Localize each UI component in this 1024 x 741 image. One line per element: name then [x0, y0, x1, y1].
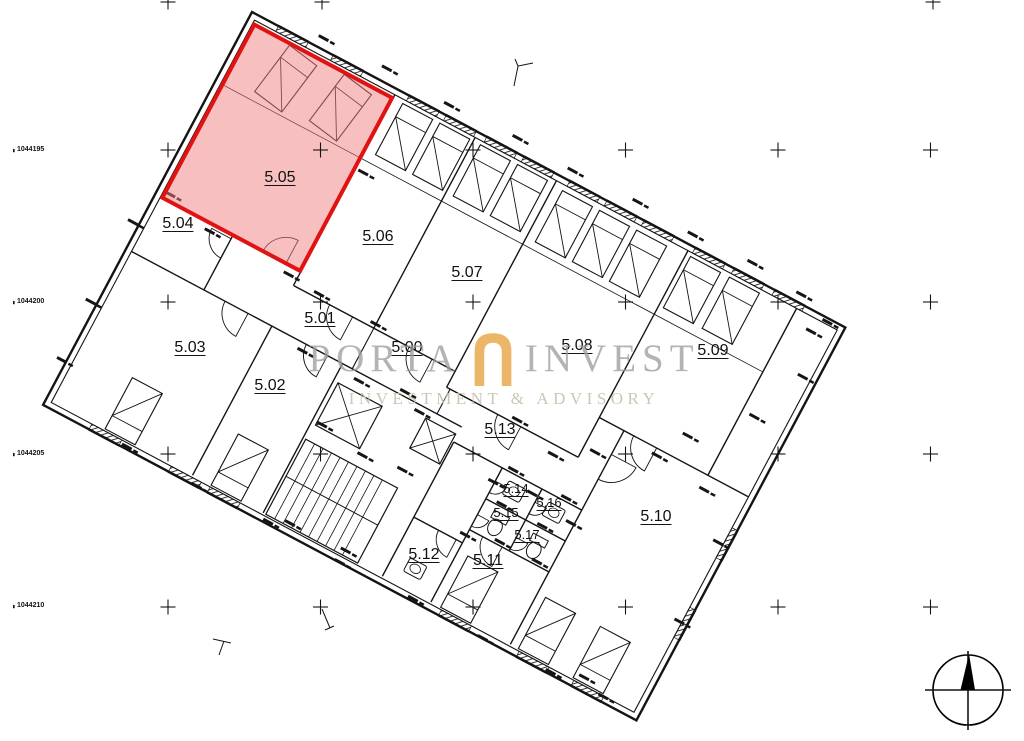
survey-grid-and-labels: 10441951044200104420510442105.005.015.02…: [13, 0, 941, 655]
highlighted-room-5.05[interactable]: [162, 25, 392, 271]
room-label-5.09: 5.09: [697, 342, 728, 359]
north-arrow-compass: [925, 651, 1011, 730]
room-label-5.15: 5.15: [493, 505, 518, 520]
bed-symbol: [535, 191, 592, 258]
staircase: [266, 439, 398, 563]
room-label-5.03: 5.03: [174, 339, 205, 356]
elevator-shaft: [315, 374, 455, 485]
bed-symbol: [105, 378, 162, 445]
radiator-hatches: [69, 25, 847, 722]
coordinate-label: 1044195: [17, 146, 44, 153]
room-label-5.04: 5.04: [162, 215, 193, 232]
coordinate-label: 1044200: [17, 298, 44, 305]
room-label-5.12: 5.12: [408, 546, 439, 563]
room-label-5.02: 5.02: [254, 377, 285, 394]
room-label-5.00: 5.00: [391, 339, 422, 356]
door-arcs: [127, 202, 664, 620]
room-label-5.10: 5.10: [640, 508, 671, 525]
floorplan-page: 10441951044200104420510442105.005.015.02…: [0, 0, 1024, 741]
floorplan-canvas: 10441951044200104420510442105.005.015.02…: [0, 0, 1024, 741]
room-label-5.16: 5.16: [536, 495, 561, 510]
bed-symbol: [490, 164, 547, 231]
door-arc: [622, 436, 657, 471]
room-label-5.07: 5.07: [451, 264, 482, 281]
room-label-5.08: 5.08: [561, 337, 592, 354]
bed-symbols: [82, 39, 804, 693]
bed-symbol: [663, 257, 720, 324]
room-label-5.01: 5.01: [304, 310, 335, 327]
north-needle-icon: [961, 654, 976, 690]
door-arc: [598, 454, 636, 492]
room-label-5.13: 5.13: [484, 421, 515, 438]
bed-symbol: [572, 210, 629, 277]
coordinate-label: 1044205: [17, 450, 44, 457]
room-label-5.06: 5.06: [362, 228, 393, 245]
bed-symbol: [573, 626, 630, 693]
building: [32, 0, 856, 723]
door-arc: [471, 515, 489, 533]
bed-symbol: [518, 597, 575, 664]
room-label-5.17: 5.17: [514, 527, 539, 542]
room-label-5.14: 5.14: [503, 481, 528, 496]
room-label-5.11: 5.11: [473, 552, 503, 569]
bathroom-fixtures: [403, 457, 565, 625]
door-arc: [213, 301, 248, 336]
bed-symbol: [609, 230, 666, 297]
room-label-5.05: 5.05: [264, 169, 295, 186]
bed-symbol: [702, 277, 759, 344]
coordinate-label: 1044210: [17, 602, 44, 609]
bed-symbol: [211, 434, 268, 501]
